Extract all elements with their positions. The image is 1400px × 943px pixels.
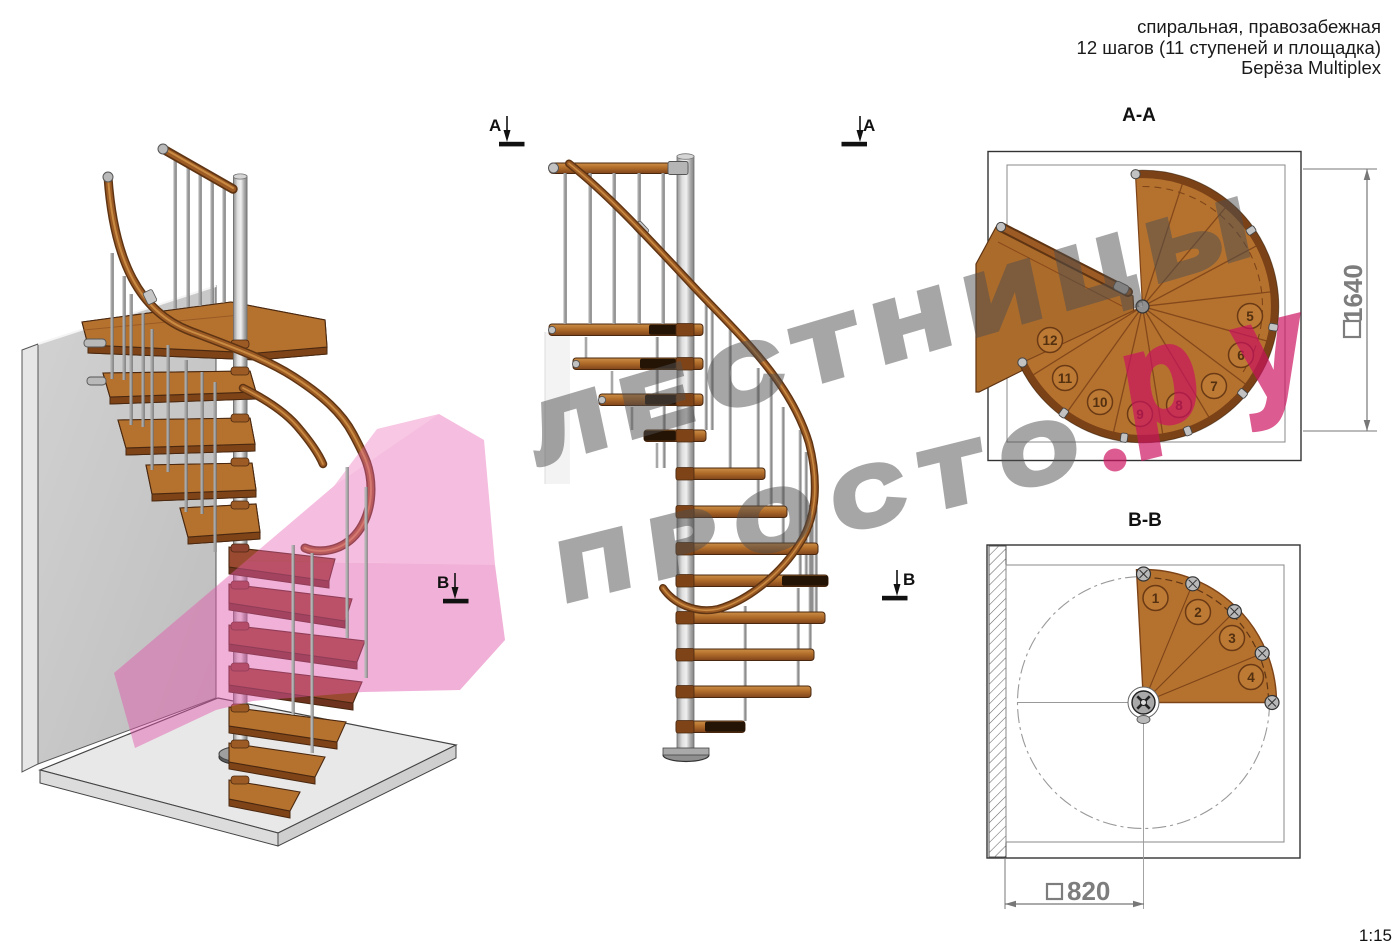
svg-text:4: 4 <box>1247 670 1255 685</box>
svg-text:1:15: 1:15 <box>1359 926 1392 943</box>
svg-text:спиральная, правозабежная: спиральная, правозабежная <box>1137 16 1381 37</box>
svg-text:B: B <box>903 570 915 589</box>
svg-text:11: 11 <box>1058 371 1073 386</box>
svg-text:B-B: B-B <box>1128 510 1162 531</box>
svg-text:A: A <box>489 116 501 135</box>
svg-text:Берёза Multiplex: Берёза Multiplex <box>1241 57 1382 78</box>
svg-text:12: 12 <box>1042 333 1057 348</box>
svg-text:A: A <box>863 116 875 135</box>
svg-text:820: 820 <box>1067 876 1110 906</box>
svg-text:12 шагов (11 ступеней и площад: 12 шагов (11 ступеней и площадка) <box>1077 37 1381 58</box>
svg-text:1640: 1640 <box>1338 264 1368 322</box>
svg-text:1: 1 <box>1152 591 1160 606</box>
svg-text:B: B <box>437 573 449 592</box>
svg-text:2: 2 <box>1194 605 1202 620</box>
svg-text:10: 10 <box>1092 395 1107 410</box>
svg-text:3: 3 <box>1228 631 1236 646</box>
svg-text:А-А: А-А <box>1122 105 1156 126</box>
